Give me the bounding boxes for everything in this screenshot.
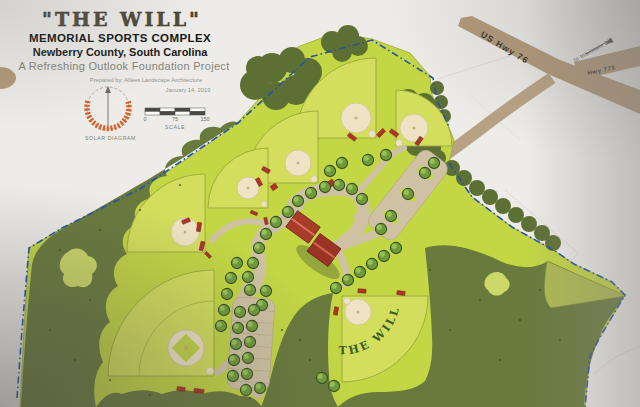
tree-icon — [232, 322, 243, 333]
tree-icon — [241, 368, 252, 379]
site-plan-map: US Hwy 76 to Interstate 26 Hwy 773 THE W… — [0, 0, 640, 407]
shrub — [495, 198, 511, 214]
keyhole-plaza — [354, 210, 370, 226]
stipple-dot — [139, 209, 141, 211]
tree-icon — [260, 285, 271, 296]
stipple-dot — [499, 359, 501, 361]
tree-icon — [316, 372, 327, 383]
stipple-dot — [74, 359, 76, 361]
tree-icon — [218, 304, 229, 315]
tree-icon — [221, 288, 232, 299]
stipple-dot — [89, 299, 91, 301]
stipple-dot — [309, 359, 311, 361]
stipple-dot — [49, 329, 51, 331]
tree-icon — [366, 258, 377, 269]
tree-icon — [362, 154, 373, 165]
plan-subtitle: MEMORIAL SPORTS COMPLEX — [29, 32, 211, 44]
stipple-dot — [429, 269, 431, 271]
stipple-dot — [539, 289, 541, 291]
stipple-dot — [559, 339, 561, 341]
tree-icon — [328, 380, 339, 391]
tree-icon — [336, 157, 347, 168]
tree-icon — [215, 320, 226, 331]
scale-tick-75: 75 — [172, 116, 178, 122]
tree-icon — [225, 272, 236, 283]
stipple-dot — [99, 229, 101, 231]
tree-icon — [305, 187, 316, 198]
stipple-dot — [449, 329, 451, 331]
tree-icon — [246, 320, 257, 331]
tree-icon — [378, 250, 389, 261]
plan-location: Newberry County, South Carolina — [33, 46, 208, 58]
tree-icon — [356, 193, 367, 204]
stipple-dot — [109, 379, 111, 381]
shrub — [508, 207, 524, 223]
tree-icon — [230, 338, 241, 349]
tree-icon — [346, 183, 357, 194]
tree-icon — [244, 336, 255, 347]
tree-icon — [419, 167, 430, 178]
plan-project: A Refreshing Outlook Foundation Project — [18, 60, 229, 72]
plan-title: "THE WILL" — [42, 8, 202, 30]
plan-date: January 14, 2019 — [166, 87, 211, 93]
tree-icon — [260, 228, 271, 239]
tree-icon — [385, 210, 396, 221]
tree-icon — [242, 352, 253, 363]
site-plan-photo: US Hwy 76 to Interstate 26 Hwy 773 THE W… — [0, 0, 640, 407]
tree-icon — [244, 284, 255, 295]
prepared-by: Prepared by: Allées Landscape Architectu… — [90, 77, 202, 83]
tree-icon — [330, 282, 341, 293]
tree-icon — [333, 179, 344, 190]
tree-icon — [292, 195, 303, 206]
tree-icon — [231, 257, 242, 268]
shrub — [430, 81, 444, 95]
tree-icon — [428, 157, 439, 168]
tree-icon — [390, 242, 401, 253]
tree-icon — [380, 149, 391, 160]
tree-icon — [227, 370, 238, 381]
tree-icon — [282, 206, 293, 217]
tree-icon — [342, 274, 353, 285]
stipple-dot — [281, 329, 283, 331]
tree-icon — [247, 257, 258, 268]
tree-icon — [253, 242, 264, 253]
shrub — [469, 180, 485, 196]
bleacher — [358, 289, 366, 294]
shrub — [482, 189, 498, 205]
stipple-dot — [299, 339, 301, 341]
tree-icon — [319, 181, 330, 192]
shrub — [521, 216, 537, 232]
scale-label: SCALE — [165, 124, 185, 130]
solar-diagram-label: SOLAR DIAGRAM — [85, 135, 136, 141]
tree-icon — [228, 354, 239, 365]
bleacher — [397, 290, 405, 295]
stipple-dot — [519, 319, 521, 321]
tree-icon — [254, 382, 265, 393]
tree-icon — [324, 165, 335, 176]
scale-tick-0: 0 — [143, 116, 146, 122]
stipple-dot — [149, 394, 151, 396]
tree-icon — [402, 188, 413, 199]
stipple-dot — [59, 249, 61, 251]
tree-icon — [240, 384, 251, 395]
stipple-dot — [479, 299, 481, 301]
tree-icon — [234, 306, 245, 317]
tree-icon — [270, 216, 281, 227]
tree-icon — [354, 266, 365, 277]
stipple-dot — [249, 397, 251, 399]
scale-tick-150: 150 — [200, 116, 209, 122]
tree-icon — [242, 271, 253, 282]
stipple-dot — [179, 184, 181, 186]
tree-icon — [248, 304, 259, 315]
tree-icon — [375, 223, 386, 234]
shrub — [545, 235, 561, 251]
bleacher — [177, 386, 185, 391]
